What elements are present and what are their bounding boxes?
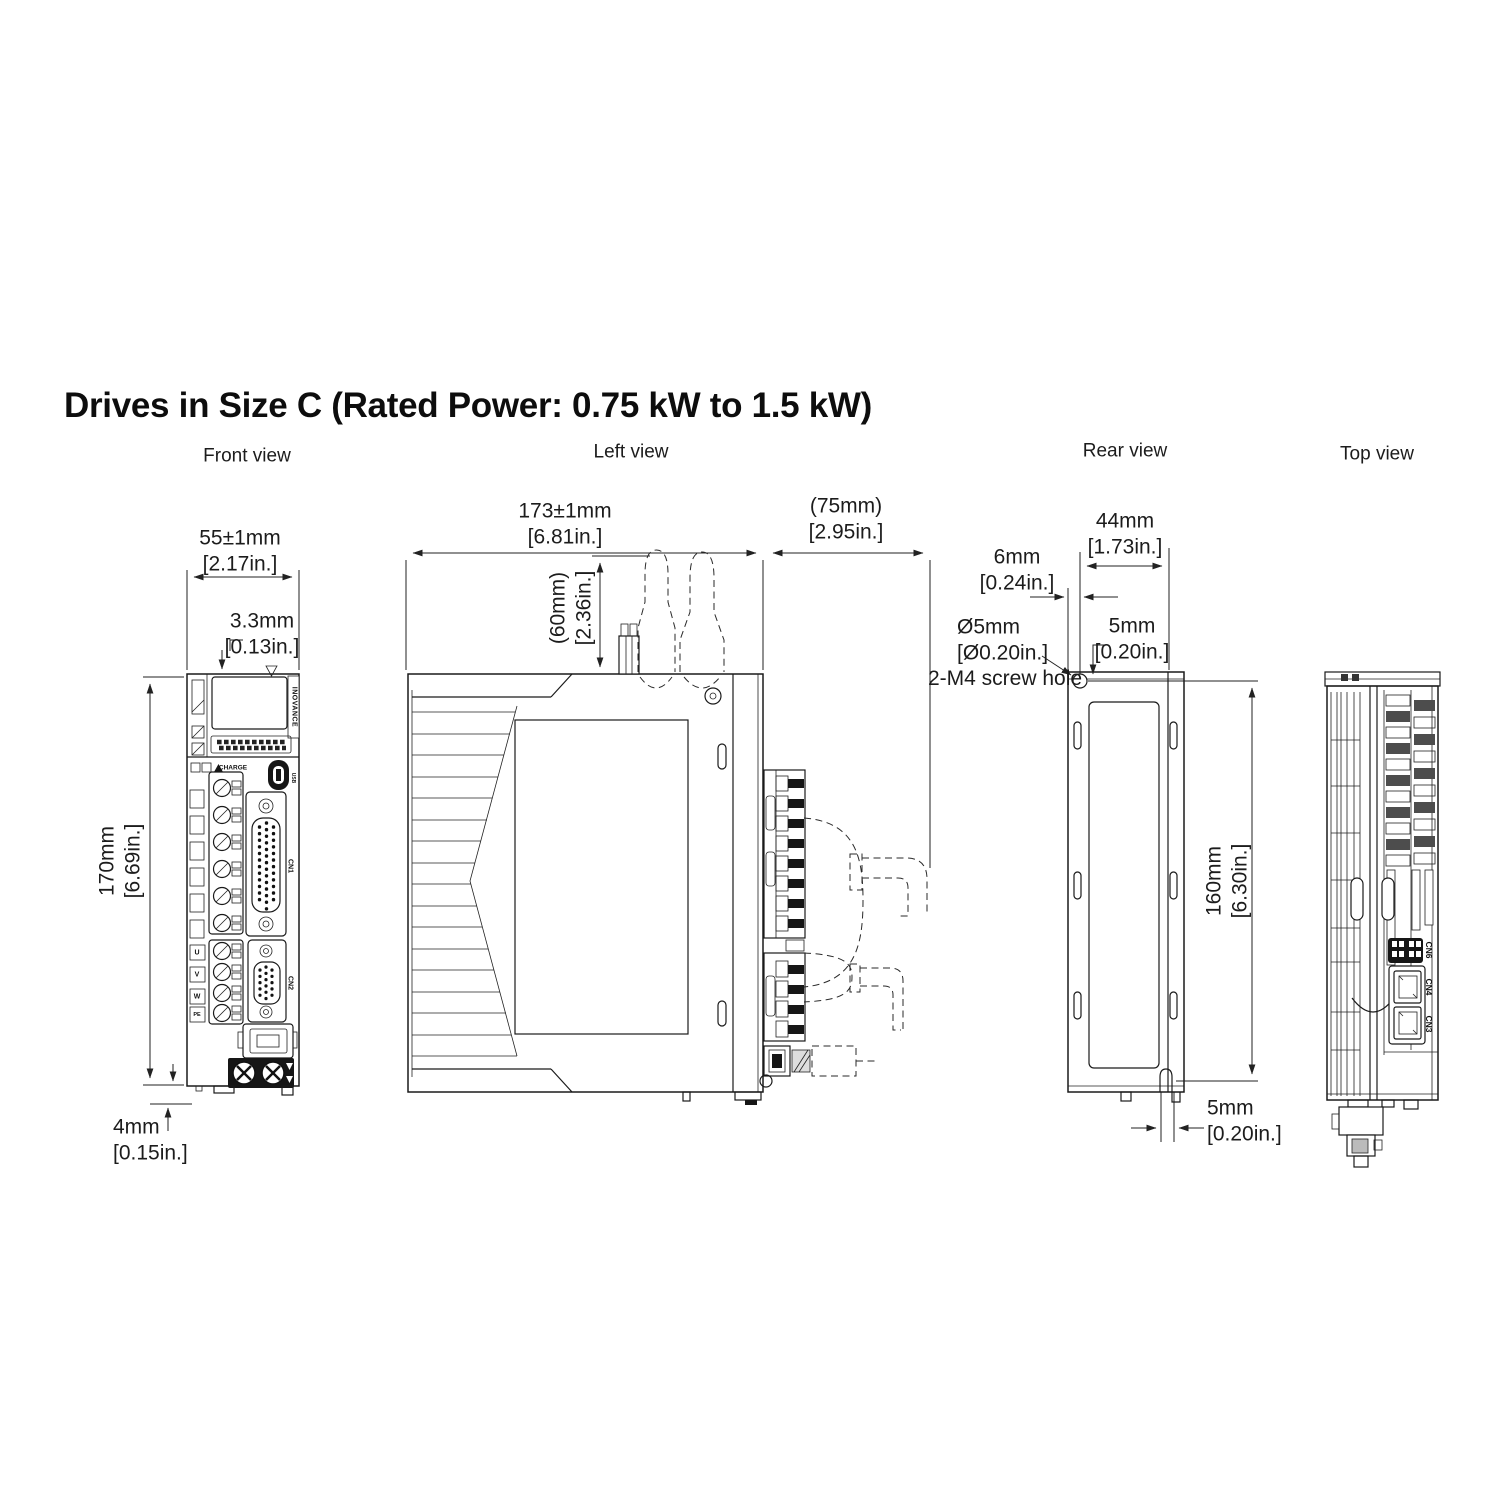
- dim-mm: 4mm: [113, 1114, 188, 1140]
- left-top-clearance-dim: (60mm) [2.36in.]: [545, 571, 596, 646]
- power-terminal-block: [209, 772, 243, 934]
- dim-mm: (60mm): [545, 571, 571, 646]
- heatsink-fins: [412, 706, 517, 1056]
- cn1-connector: [246, 792, 286, 936]
- page-title: Drives in Size C (Rated Power: 0.75 kW t…: [64, 386, 872, 426]
- front-width-dim: 55±1mm [2.17in.]: [199, 525, 281, 576]
- dim-mm: 44mm: [1088, 508, 1163, 534]
- rear-edge-dim: 6mm [0.24in.]: [980, 544, 1055, 595]
- terminal-label-boxes: [190, 790, 205, 1022]
- cn4-cn3-connectors: [1389, 966, 1425, 1044]
- comm-jack: [764, 1046, 876, 1076]
- rear-height-dim: 160mm [6.30in.]: [1201, 844, 1252, 919]
- ground-screws: [228, 1058, 294, 1088]
- dim-in: [2.36in.]: [571, 571, 597, 646]
- cn2-connector: [248, 940, 286, 1022]
- left-clearance-dim: (75mm) [2.95in.]: [809, 493, 884, 544]
- front-view-label: Front view: [203, 444, 291, 467]
- dim-in: [0.20in.]: [1095, 639, 1170, 665]
- front-step-dim: 3.3mm [0.13in.]: [225, 608, 300, 659]
- dim-mm: 5mm: [1095, 613, 1170, 639]
- side-panel: [515, 720, 688, 1034]
- rear-bottom-offset-dim: 5mm [0.20in.]: [1207, 1095, 1282, 1146]
- brand-label: INOVANCE: [291, 687, 298, 727]
- dim-in: [Ø0.20in.]: [957, 640, 1048, 666]
- cn6-connector: [1388, 938, 1423, 963]
- usb-label: USB: [290, 773, 296, 784]
- cable-bend-upper: [804, 818, 927, 987]
- rear-recess-panel: [1089, 702, 1159, 1068]
- left-view-drawing: [406, 550, 930, 1105]
- dim-in: [2.95in.]: [809, 519, 884, 545]
- terminal-v-label: V: [195, 972, 200, 979]
- dim-in: [0.13in.]: [225, 634, 300, 660]
- dimension-diagram-page: Drives in Size C (Rated Power: 0.75 kW t…: [0, 0, 1500, 1500]
- display-panel: [212, 677, 287, 729]
- diagram-linework: [0, 0, 1500, 1500]
- cable-plug-clearance: [638, 550, 724, 688]
- charge-label: CHARGE: [219, 765, 247, 772]
- dim-mm: 160mm: [1201, 844, 1227, 919]
- front-indicator-slots: [192, 680, 204, 755]
- connector-block-stack: [1386, 695, 1435, 866]
- front-height-dim: 170mm [6.69in.]: [94, 824, 145, 899]
- usb-port: [268, 760, 289, 790]
- top-view-drawing: [1325, 672, 1440, 1167]
- rear-hole-dim: Ø5mm [Ø0.20in.]: [957, 614, 1048, 665]
- rear-width-dim: 44mm [1.73in.]: [1088, 508, 1163, 559]
- terminal-pe-label: PE: [193, 1012, 200, 1018]
- dim-mm: 173±1mm: [518, 498, 611, 524]
- rear-screw-note: 2-M4 screw hole: [928, 666, 1082, 692]
- bottom-io-connector: [238, 1024, 297, 1058]
- front-terminal-block-lower: [764, 953, 805, 1041]
- dip-connector-row: [211, 736, 291, 753]
- dim-mm: 55±1mm: [199, 525, 281, 551]
- dim-mm: Ø5mm: [957, 614, 1048, 640]
- dim-mm: 170mm: [94, 824, 120, 899]
- bottom-keyhole-slot: [1160, 1069, 1172, 1092]
- front-foot-dim: 4mm [0.15in.]: [113, 1114, 188, 1165]
- cn4-label: CN4: [1424, 978, 1434, 995]
- dim-mm: 3.3mm: [225, 608, 300, 634]
- dim-in: [6.69in.]: [120, 824, 146, 899]
- cn2-label: CN2: [287, 976, 294, 990]
- terminal-w-label: W: [194, 994, 201, 1001]
- motor-terminal-block: [209, 940, 243, 1024]
- cable-bend-lower: [804, 953, 903, 1030]
- dim-in: [0.15in.]: [113, 1140, 188, 1166]
- cn6-label: CN6: [1424, 941, 1434, 958]
- dim-in: [6.81in.]: [518, 524, 611, 550]
- thumbscrew: [705, 688, 721, 704]
- rear-top-offset-dim: 5mm [0.20in.]: [1095, 613, 1170, 664]
- dim-in: [1.73in.]: [1088, 534, 1163, 560]
- rear-view-label: Rear view: [1083, 439, 1167, 462]
- cable-notch: [1352, 998, 1394, 1012]
- left-view-label: Left view: [594, 440, 669, 463]
- cn1-label: CN1: [287, 859, 294, 873]
- dim-in: [6.30in.]: [1227, 844, 1253, 919]
- dim-in: [0.20in.]: [1207, 1121, 1282, 1147]
- dim-in: [0.24in.]: [980, 570, 1055, 596]
- front-terminal-block-upper: [764, 770, 805, 938]
- top-terminal: [619, 624, 639, 674]
- dim-mm: (75mm): [809, 493, 884, 519]
- terminal-u-label: U: [194, 950, 199, 957]
- dim-mm: 5mm: [1207, 1095, 1282, 1121]
- top-view-label: Top view: [1340, 442, 1414, 465]
- left-depth-dim: 173±1mm [6.81in.]: [518, 498, 611, 549]
- bottom-plug: [1332, 1107, 1383, 1167]
- dim-mm: 6mm: [980, 544, 1055, 570]
- cn3-label: CN3: [1424, 1015, 1434, 1032]
- dim-in: [2.17in.]: [199, 551, 281, 577]
